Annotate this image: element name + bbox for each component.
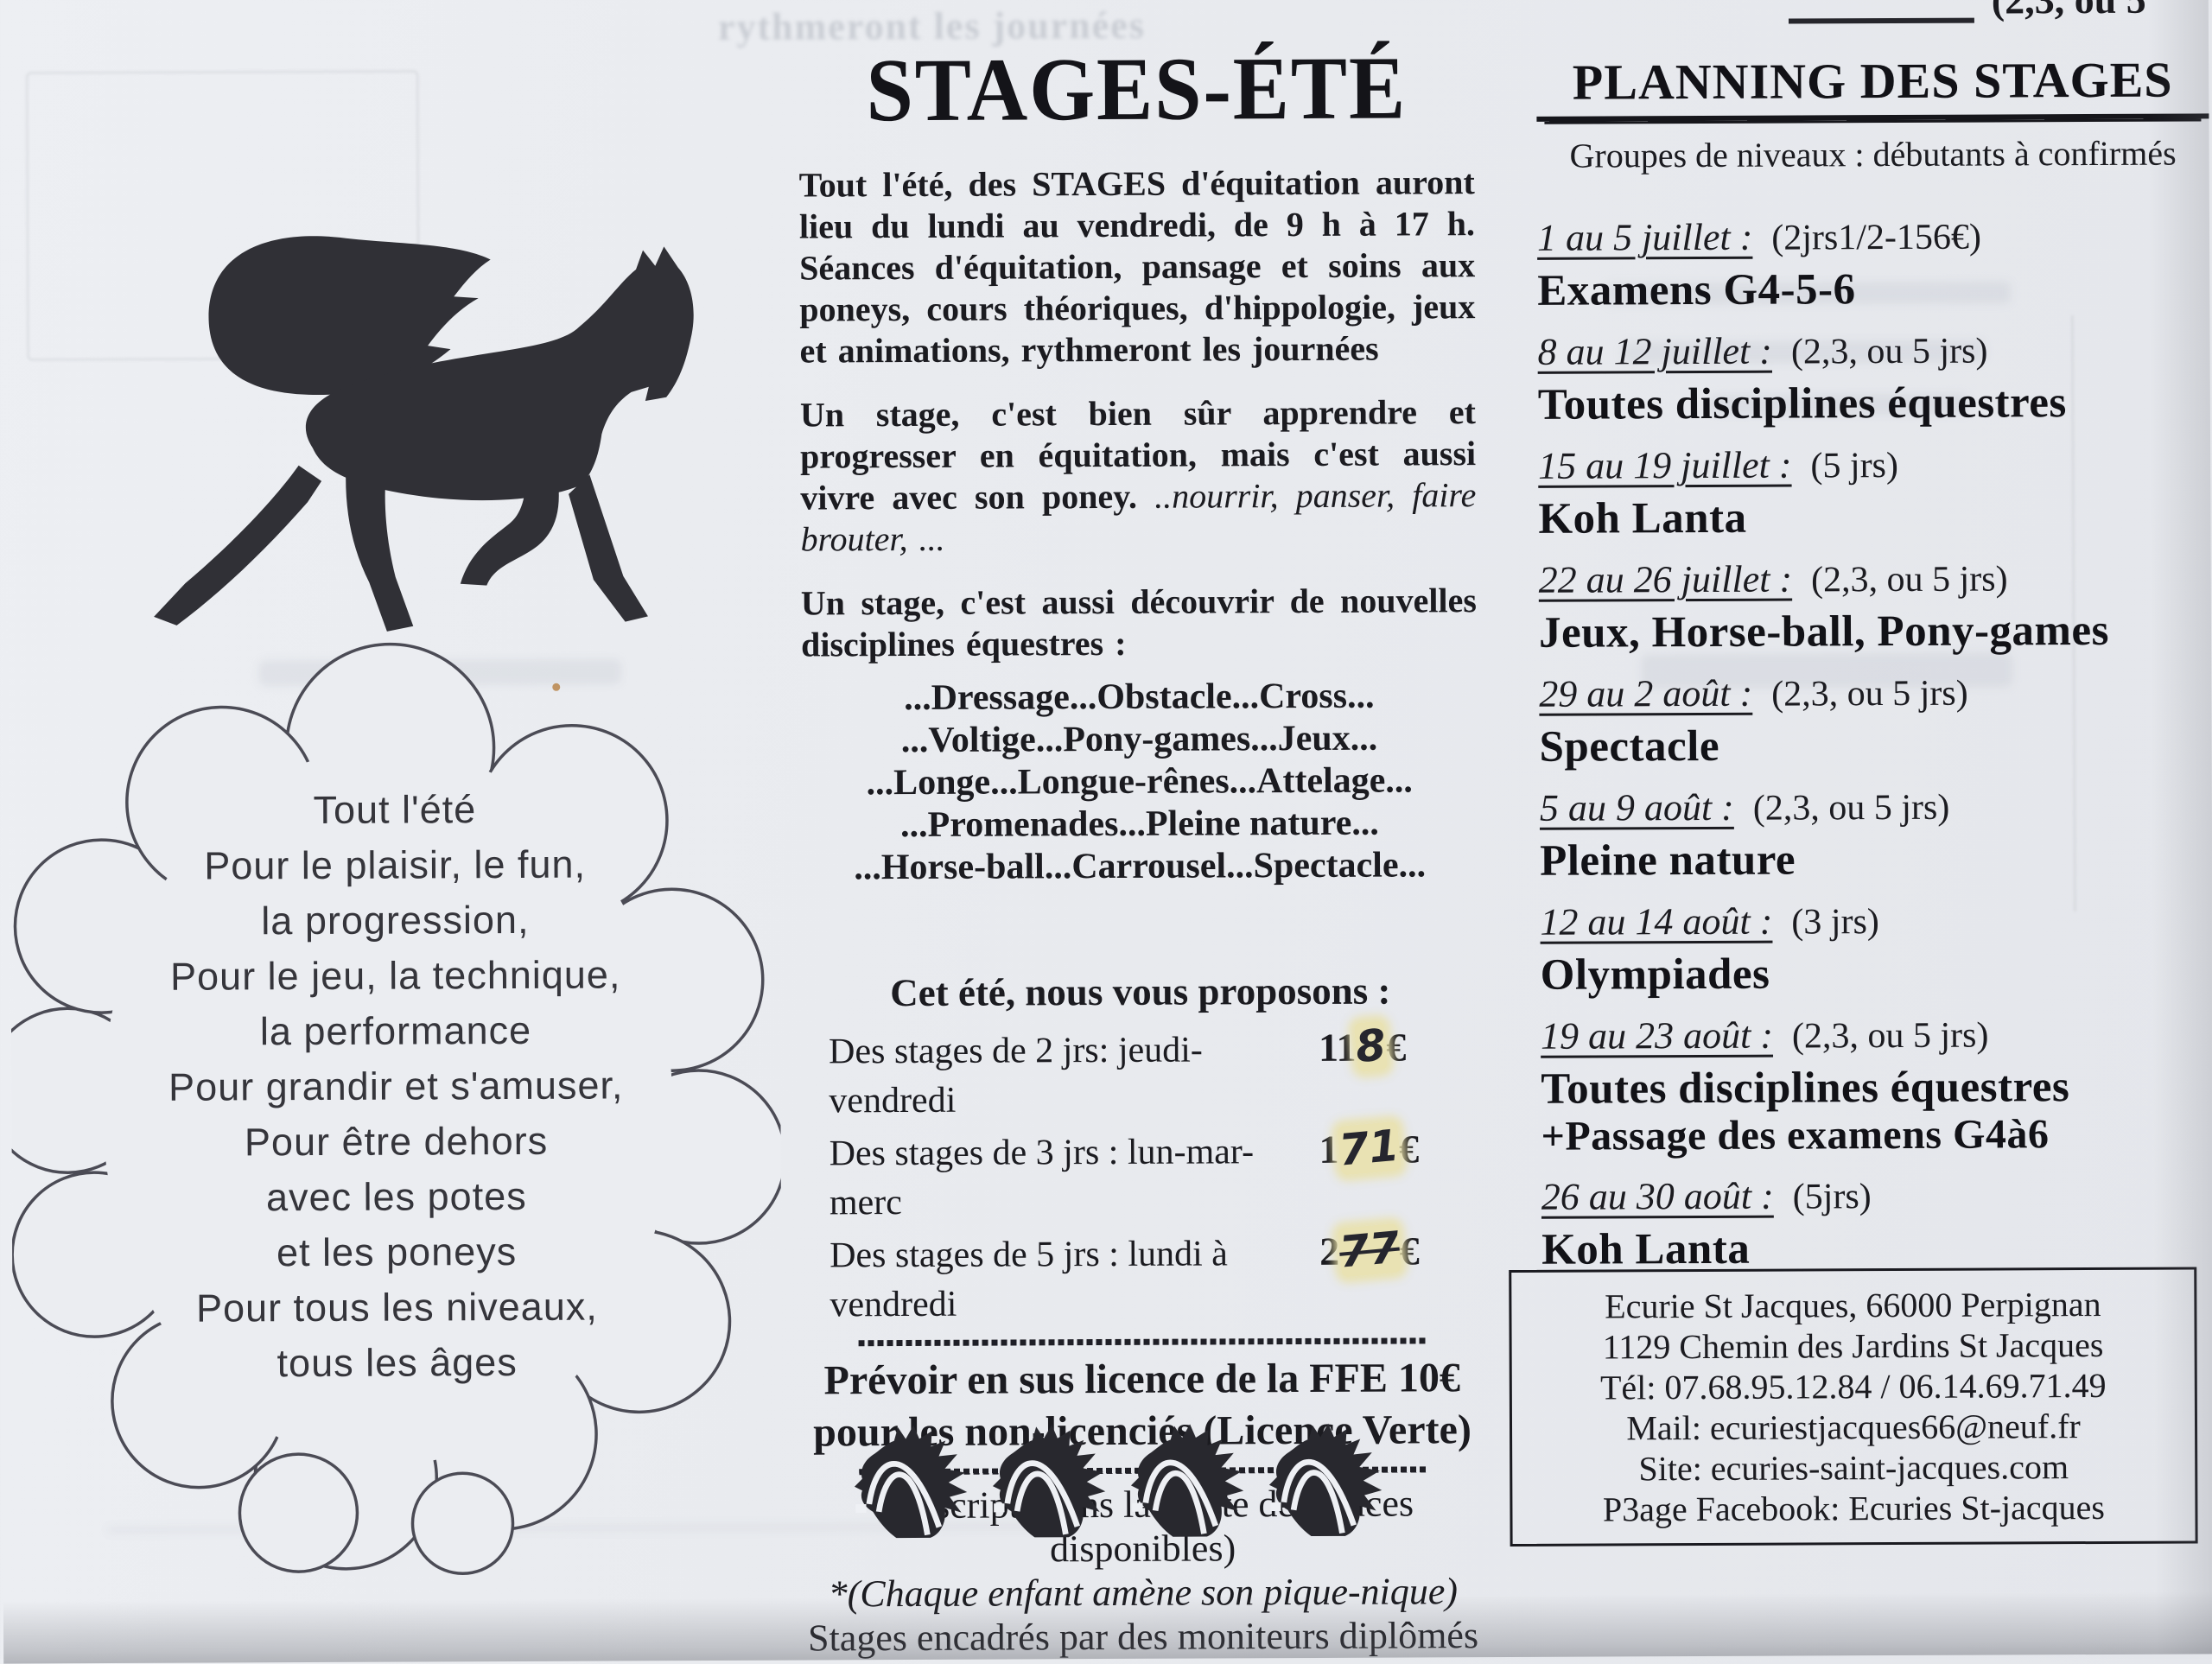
planning-entry-activity: Spectacle [1539, 720, 2211, 771]
offers-heading: Cet été, nous vous proposons : [803, 968, 1478, 1015]
planning-entry-date: 29 au 2 août : [1539, 672, 1752, 715]
price-row: Des stages de 3 jrs : lun-mar-merc 171€ [803, 1123, 1479, 1228]
price-printed: 1 [1319, 1127, 1339, 1172]
planning-entry-date: 8 au 12 juillet : [1537, 330, 1772, 373]
cropped-fragment-text: (2,3, ou 5 [1992, 0, 2146, 23]
planning-entry-date: 12 au 14 août : [1540, 900, 1772, 943]
cropped-underline [1789, 0, 1974, 24]
price-label: Des stages de 3 jrs : lun-mar-merc [804, 1127, 1319, 1229]
planning-entry-date: 19 au 23 août : [1541, 1014, 1773, 1057]
cloud-text-line: tous les âges [73, 1334, 721, 1392]
intro-paragraph-1: Tout l'été, des STAGES d'équitation auro… [799, 162, 1476, 372]
price-value: 277€ [1319, 1225, 1479, 1276]
cloud-speech-bubble: Tout l'été Pour le plaisir, le fun, la p… [10, 617, 783, 1579]
price-row: Des stages de 5 jrs : lundi à vendredi 2… [804, 1225, 1480, 1330]
intro-paragraph-3: Un stage, c'est aussi découvrir de nouve… [801, 580, 1477, 665]
planning-entry-activity: Toutes disciplines équestres [1538, 378, 2210, 429]
price-value: 118€ [1319, 1021, 1478, 1072]
planning-entry-activity: Koh Lanta [1541, 1223, 2212, 1273]
intro-paragraph-2: Un stage, c'est bien sûr apprendre et pr… [800, 391, 1477, 560]
cloud-text-line: Pour grandir et s'amuser, [72, 1057, 720, 1115]
discipline-line: ...Longe...Longue-rênes...Attelage... [802, 759, 1478, 804]
horse-heads-row [849, 1416, 1403, 1564]
planning-entry: 1 au 5 juillet :(2jrs1/2-156€) Examens G… [1537, 213, 2209, 314]
contact-email: Mail: ecuriestjacques66@neuf.fr [1517, 1406, 2190, 1449]
cloud-text-line: Pour le jeu, la technique, [72, 947, 720, 1005]
cloud-text-line: et les poneys [73, 1223, 721, 1281]
cloud-text-line: avec les potes [73, 1168, 721, 1226]
price-printed: 11 [1319, 1026, 1357, 1070]
scanned-flyer-page: rythmeront les journées (2,3, ou 5 [0, 0, 2212, 1664]
price-printed: 2 [1319, 1229, 1339, 1273]
price-value: 171€ [1319, 1123, 1478, 1174]
horse-head-icon [1264, 1416, 1391, 1562]
planning-entry-info: (2jrs1/2-156€) [1771, 218, 1981, 258]
price-label: Des stages de 5 jrs : lundi à vendredi [804, 1229, 1319, 1331]
planning-entry-date: 1 au 5 juillet : [1537, 216, 1753, 259]
planning-column: PLANNING DES STAGES Groupes de niveaux :… [1536, 50, 2212, 1288]
price-currency: € [1399, 1127, 1419, 1171]
cloud-text-line: Pour tous les niveaux, [73, 1279, 721, 1337]
planning-entry-activity: Toutes disciplines équestres [1541, 1062, 2212, 1113]
cloud-text-line: Pour être dehors [72, 1113, 720, 1171]
page-title: STAGES-ÉTÉ [818, 36, 1454, 142]
price-handwritten: 77 [1338, 1223, 1402, 1278]
contact-box: Ecurie St Jacques, 66000 Perpignan 1129 … [1509, 1267, 2197, 1546]
cloud-text-line: Pour le plaisir, le fun, [71, 836, 719, 894]
horse-head-icon [1126, 1416, 1253, 1562]
planning-entry-date: 26 au 30 août : [1541, 1175, 1774, 1218]
contact-facebook: P3age Facebook: Ecuries St-jacques [1517, 1487, 2190, 1530]
planning-entry-info: (5jrs) [1793, 1177, 1872, 1216]
planning-entry: 26 au 30 août :(5jrs) Koh Lanta [1541, 1172, 2212, 1273]
planning-entry: 29 au 2 août :(2,3, ou 5 jrs) Spectacle [1539, 669, 2211, 771]
planning-subtitle: Groupes de niveaux : débutants à confirm… [1537, 132, 2209, 175]
cropped-text-fragment: (2,3, ou 5 [1789, 0, 2203, 30]
discipline-line: ...Voltige...Pony-games...Jeux... [801, 717, 1477, 762]
discipline-line: ...Promenades...Pleine nature... [802, 802, 1478, 847]
licence-note-line-1: Prévoir en sus licence de la FFE 10€ [804, 1352, 1480, 1407]
intro-column: STAGES-ÉTÉ Tout l'été, des STAGES d'équi… [798, 36, 1478, 889]
planning-entry: 22 au 26 juillet :(2,3, ou 5 jrs) Jeux, … [1539, 555, 2211, 657]
planning-entry-date: 15 au 19 juillet : [1538, 444, 1792, 487]
planning-entry-info: (2,3, ou 5 jrs) [1792, 1016, 1989, 1057]
price-currency: € [1400, 1229, 1420, 1273]
horse-head-icon [849, 1418, 976, 1564]
horse-silhouette-image [76, 88, 709, 635]
planning-entry: 12 au 14 août :(3 jrs) Olympiades [1540, 897, 2212, 999]
planning-entry: 5 au 9 août :(2,3, ou 5 jrs) Pleine natu… [1540, 783, 2212, 885]
price-handwritten: 71 [1337, 1121, 1402, 1176]
planning-entry-info: (2,3, ou 5 jrs) [1771, 674, 1968, 715]
planning-entry-activity: Olympiades [1541, 948, 2212, 999]
planning-entry-activity: Jeux, Horse-ball, Pony-games [1539, 606, 2211, 657]
planning-entry-info: (5 jrs) [1810, 446, 1898, 486]
contact-website: Site: ecuries-saint-jacques.com [1517, 1446, 2190, 1489]
horse-head-icon [988, 1417, 1115, 1563]
contact-phone: Tél: 07.68.95.12.84 / 06.14.69.71.49 [1517, 1365, 2190, 1408]
price-currency: € [1386, 1025, 1406, 1069]
cloud-text-line: Tout l'été [71, 781, 719, 839]
planning-title: PLANNING DES STAGES [1536, 50, 2209, 121]
planning-entry-activity: Examens G4-5-6 [1537, 264, 2209, 314]
planning-entry-date: 5 au 9 août : [1540, 786, 1734, 829]
contact-address: 1129 Chemin des Jardins St Jacques [1517, 1324, 2190, 1368]
price-row: Des stages de 2 jrs: jeudi-vendredi 118€ [803, 1021, 1479, 1126]
planning-entry-activity: Pleine nature [1540, 834, 2212, 885]
planning-entry-info: (3 jrs) [1791, 902, 1879, 942]
photo-shadow-bottom [3, 1591, 2212, 1663]
discipline-line: ...Dressage...Obstacle...Cross... [801, 675, 1477, 720]
cloud-text-line: la progression, [71, 892, 719, 949]
divider-rule [858, 1337, 1426, 1346]
planning-entry-activity-2: +Passage des examens G4à6 [1541, 1110, 2212, 1159]
planning-entry: 19 au 23 août :(2,3, ou 5 jrs) Toutes di… [1541, 1011, 2212, 1159]
contact-name: Ecurie St Jacques, 66000 Perpignan [1516, 1284, 2189, 1327]
planning-entry-date: 22 au 26 juillet : [1539, 558, 1793, 601]
planning-entry-info: (2,3, ou 5 jrs) [1811, 559, 2008, 600]
photo-shadow-right [2148, 0, 2212, 1654]
price-handwritten: 8 [1354, 1020, 1389, 1072]
planning-entry-activity: Koh Lanta [1538, 492, 2210, 543]
planning-entry: 15 au 19 juillet :(5 jrs) Koh Lanta [1538, 441, 2210, 543]
planning-entry-info: (2,3, ou 5 jrs) [1791, 332, 1988, 372]
planning-entry-info: (2,3, ou 5 jrs) [1753, 788, 1950, 829]
cloud-text-line: la performance [72, 1002, 720, 1060]
price-label: Des stages de 2 jrs: jeudi-vendredi [803, 1026, 1319, 1127]
planning-entry: 8 au 12 juillet :(2,3, ou 5 jrs) Toutes … [1537, 327, 2209, 429]
cloud-text: Tout l'été Pour le plaisir, le fun, la p… [71, 781, 721, 1392]
discipline-line: ...Horse-ball...Carrousel...Spectacle... [802, 844, 1478, 889]
